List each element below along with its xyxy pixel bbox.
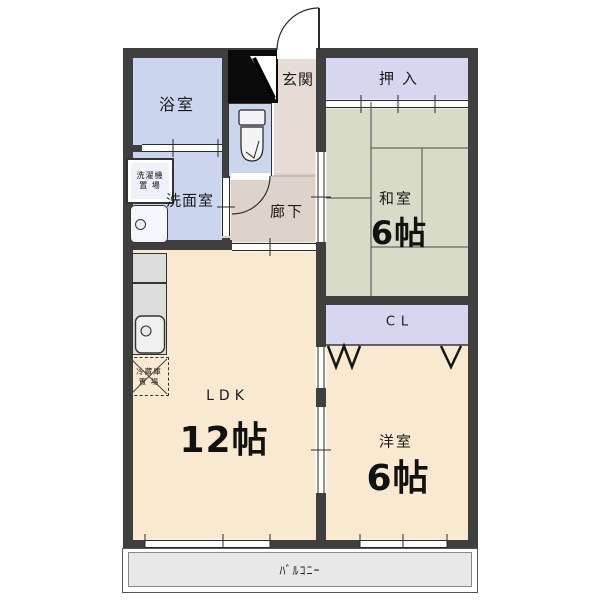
washer-label-line1: 洗濯機 [137,171,164,181]
kitchen-counter [132,253,167,355]
room-label-genkan: 玄関 [282,69,314,90]
room-label-washitsu: 和室 [379,188,413,209]
room-genkan-floor [272,48,318,178]
faucet-icon [135,219,146,230]
balcony-floor: ﾊﾞﾙｺﾆｰ [128,552,472,587]
fridge-label-line1: 冷蔵庫 [136,367,162,377]
balcony: ﾊﾞﾙｺﾆｰ [122,548,478,593]
wall-washitsu-bottom [316,296,478,305]
washer-label-line2: 置 場 [139,181,161,191]
wall-center-a [316,48,326,152]
fridge-label-line2: 置 場 [139,377,159,387]
room-label-washroom: 洗面室 [166,190,214,211]
shoe-cabinet-icon [228,50,278,103]
floor-plan: 洗濯機 置 場 冷蔵庫 置 場 [0,0,600,600]
toilet-room [228,103,272,176]
wall-center-b [316,242,326,347]
room-size-youshitsu: 6帖 [366,449,429,501]
wall-center-d [316,493,326,548]
room-label-closet: CL [380,315,414,330]
wall-top-right [316,48,478,58]
wall-bottom [123,540,478,548]
room-size-washitsu: 6帖 [371,208,427,254]
washbasin-icon [130,205,168,243]
room-label-oshiire: 押入 [371,68,425,89]
room-size-ldk: 12帖 [179,411,268,463]
counter-divider [133,282,166,284]
wall-center-c [316,388,326,407]
room-label-hallway: 廊下 [270,201,304,222]
room-label-bath: 浴室 [159,91,195,115]
room-label-balcony: ﾊﾞﾙｺﾆｰ [279,561,320,578]
refrigerator-space: 冷蔵庫 置 場 [129,357,169,396]
room-label-ldk: LDK [201,388,249,404]
